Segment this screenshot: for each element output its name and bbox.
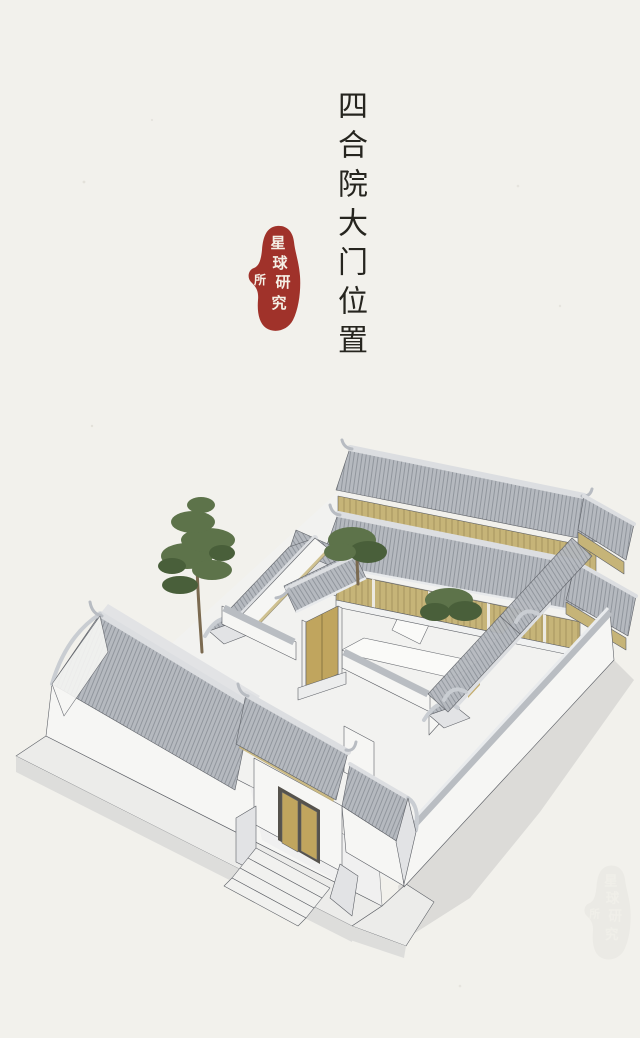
shrub-foliage <box>448 601 482 621</box>
inner-gate-post <box>338 606 342 676</box>
watermark-char: 星 <box>604 873 617 889</box>
pine-foliage <box>187 497 215 513</box>
gate-door-leaf <box>301 803 317 860</box>
watermark-char: 所 <box>589 908 600 921</box>
watermark-char: 研 <box>609 908 623 924</box>
gate-door-leaf <box>282 792 298 852</box>
pine-foliage <box>209 545 235 561</box>
pine-foliage <box>192 560 232 580</box>
brand-seal: 星 球 研 究 所 <box>247 224 305 336</box>
shrub-foliage <box>420 603 450 621</box>
inner-gate-post <box>302 620 306 692</box>
tree-trunk <box>357 560 358 584</box>
ridge-tip-icon <box>342 440 352 449</box>
watermark-char: 究 <box>605 926 619 943</box>
siheyuan-3d-illustration <box>0 0 640 1034</box>
seal-char: 星 <box>270 234 285 252</box>
seal-char: 球 <box>272 254 288 272</box>
seal-char: 研 <box>275 273 290 291</box>
watermark-char: 球 <box>606 890 620 907</box>
tree-foliage <box>324 543 356 561</box>
seal-char: 究 <box>271 294 286 312</box>
pine-foliage <box>162 576 198 594</box>
seal-char: 所 <box>254 272 266 287</box>
main-hall-pillar <box>372 579 375 608</box>
pine-foliage <box>171 511 215 533</box>
main-hall-pillar <box>543 614 546 643</box>
pine-foliage <box>158 558 186 574</box>
watermark-seal: 星 球 研 究 所 <box>583 862 635 966</box>
page-title: 四合院大门位置 <box>329 90 369 390</box>
watermark-stamp: 星 球 研 究 所 <box>583 862 635 966</box>
art-page: 四合院大门位置 星 球 研 究 所 星 球 研 究 所 <box>0 0 640 1034</box>
brand-seal-stamp: 星 球 研 究 所 <box>247 224 305 336</box>
